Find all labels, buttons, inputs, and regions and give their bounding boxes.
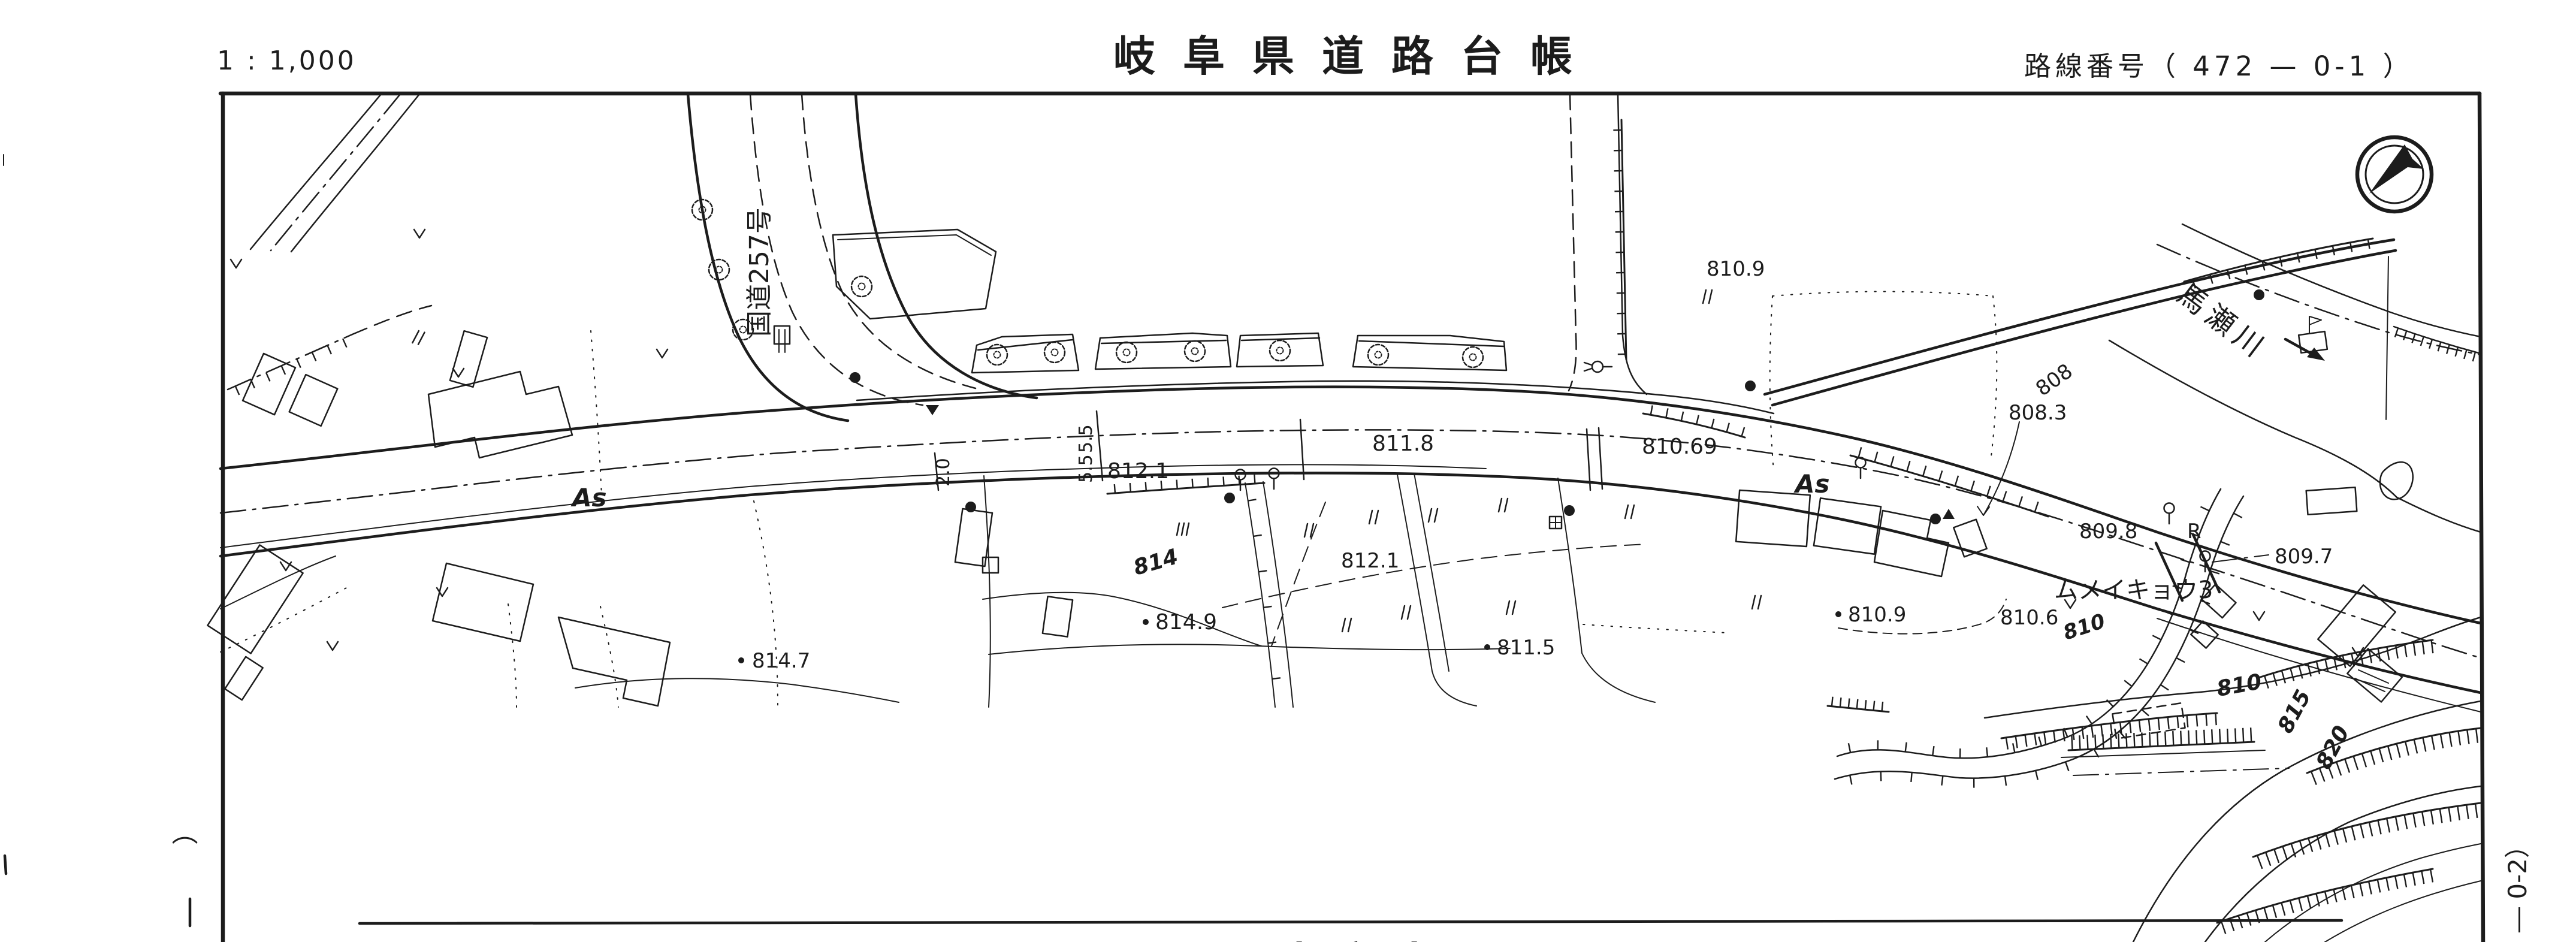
label-width-2-0: 2.0: [933, 458, 954, 487]
label-elev-814-7: 814.7: [752, 649, 810, 673]
label-elev-808-3: 808.3: [2009, 401, 2067, 425]
label-route257: 国道257号: [744, 207, 775, 337]
label-contour-815: 815: [2273, 686, 2316, 738]
label-elev-812-1-road: 812.1: [1107, 459, 1169, 484]
road-ledger-sheet: 1 : 1,000 岐阜県道路台帳 路線番号（ 472 — 0-1 ） 大字大原: [0, 0, 2576, 942]
label-bridge-name: ムメイキョウ3: [2054, 576, 2213, 604]
field-symbols: [231, 230, 2363, 663]
label-width-5-5a: 5.5: [1076, 424, 1097, 453]
label-contour-810: 810: [2215, 669, 2263, 701]
label-as-right: As: [1793, 469, 1830, 499]
riverside-road: [1745, 238, 2396, 478]
stream: [1236, 469, 2290, 788]
label-elev-810-9: 810.9: [1848, 603, 1906, 627]
label-elev-814-9: 814.9: [1155, 610, 1217, 635]
map-canvas: 国道257号 馬瀬川 ムメイキョウ3 As As 810.9 808.3 808…: [0, 0, 2576, 942]
label-elev-808: 808: [2031, 359, 2077, 401]
label-width-5-5b: 5.5: [1076, 454, 1097, 483]
compass-icon: [2357, 137, 2432, 212]
label-elev-811-8: 811.8: [1372, 431, 1434, 456]
label-elev-810-6: 810.6: [2000, 606, 2058, 630]
label-r-mark: R: [2187, 520, 2201, 544]
contours: [1985, 617, 2481, 942]
planter-boxes: [972, 333, 1506, 373]
sheet-edge-marks: [4, 155, 190, 926]
label-elev-811-5: 811.5: [1497, 636, 1555, 660]
sheet-ref-left: （: [168, 819, 199, 845]
label-elev-814: 814: [1131, 545, 1181, 581]
map-labels: 国道257号 馬瀬川 ムメイキョウ3 As As 810.9 808.3 808…: [168, 207, 2532, 932]
label-contour-820: 820: [2312, 722, 2354, 774]
label-elev-810-69: 810.69: [1642, 434, 1717, 459]
national-route-257: [688, 94, 1037, 421]
parcel-lines: [228, 94, 2269, 707]
label-elev-809-8: 809.8: [2079, 520, 2137, 544]
label-elev-809-7: 809.7: [2275, 545, 2333, 569]
map-frame: [221, 93, 2483, 942]
label-elev-810-9-top: 810.9: [1707, 257, 1765, 281]
side-road-north: [1569, 94, 1647, 394]
label-elev-810-bridge: 810: [2060, 609, 2108, 645]
label-as-left: As: [570, 483, 607, 512]
main-road: [221, 381, 2481, 712]
sheet-ref-right: ― 0-2）: [2503, 833, 2532, 932]
label-elev-812-1: 812.1: [1341, 549, 1399, 573]
